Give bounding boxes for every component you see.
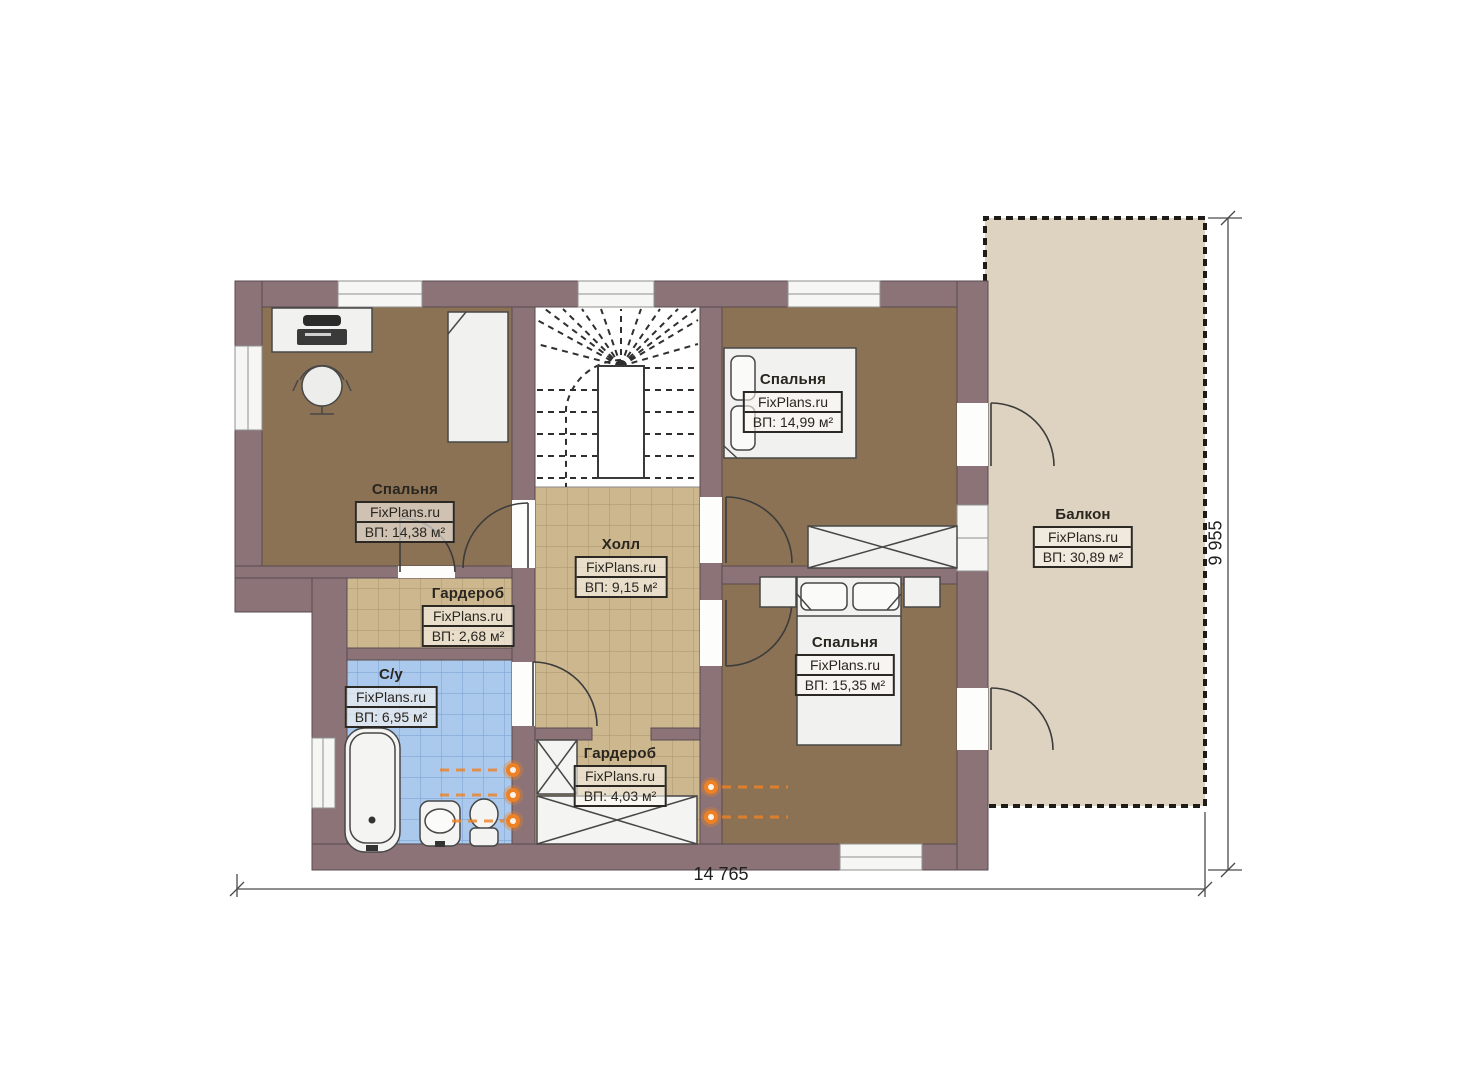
wall-left-lower bbox=[312, 578, 347, 870]
room-label-bedroom-bottom-right: Спальня FixPlans.ru ВП: 15,35 м² bbox=[795, 634, 895, 696]
room-area: ВП: 9,15 м² bbox=[577, 578, 666, 596]
room-name: Гардероб bbox=[574, 745, 667, 762]
room-area: ВП: 14,99 м² bbox=[745, 413, 841, 431]
room-area: ВП: 6,95 м² bbox=[347, 708, 436, 726]
nightstand-left bbox=[760, 577, 796, 607]
brand-watermark: FixPlans.ru bbox=[745, 393, 841, 413]
brand-watermark: FixPlans.ru bbox=[576, 767, 665, 787]
room-name: Гардероб bbox=[422, 585, 515, 602]
brand-watermark: FixPlans.ru bbox=[424, 607, 513, 627]
wardrobe-cabinet bbox=[808, 526, 957, 568]
room-area: ВП: 30,89 м² bbox=[1035, 548, 1131, 566]
wall-inner-right bbox=[700, 307, 722, 844]
room-label-balcony: Балкон FixPlans.ru ВП: 30,89 м² bbox=[1033, 506, 1133, 568]
room-name: Балкон bbox=[1033, 506, 1133, 523]
dimension-width-label: 14 765 bbox=[693, 864, 748, 885]
room-label-wardrobe-large: Гардероб FixPlans.ru ВП: 4,03 м² bbox=[574, 745, 667, 807]
brand-watermark: FixPlans.ru bbox=[1035, 528, 1131, 548]
wall-hall-wardrobe-a bbox=[535, 728, 592, 740]
wall-left-upper bbox=[235, 281, 262, 612]
bathtub bbox=[345, 728, 400, 852]
room-name: Спальня bbox=[743, 371, 843, 388]
room-name: Спальня bbox=[795, 634, 895, 651]
wall-hall-wardrobe-b bbox=[651, 728, 700, 740]
room-name: Холл bbox=[575, 536, 668, 553]
room-area: ВП: 2,68 м² bbox=[424, 627, 513, 645]
nightstand-right bbox=[904, 577, 940, 607]
room-area: ВП: 4,03 м² bbox=[576, 787, 665, 805]
room-label-bathroom: С/у FixPlans.ru ВП: 6,95 м² bbox=[345, 666, 438, 728]
wall-bedroom1-bottom bbox=[235, 566, 512, 578]
closet-narrow bbox=[537, 740, 577, 794]
stair-void bbox=[598, 366, 644, 478]
room-area: ВП: 14,38 м² bbox=[357, 523, 453, 541]
room-label-bedroom-top-right: Спальня FixPlans.ru ВП: 14,99 м² bbox=[743, 371, 843, 433]
room-label-bedroom-top-left: Спальня FixPlans.ru ВП: 14,38 м² bbox=[355, 481, 455, 543]
wall-bath-divider bbox=[347, 648, 512, 660]
floor-hall bbox=[535, 487, 700, 740]
room-name: Спальня bbox=[355, 481, 455, 498]
room-area: ВП: 15,35 м² bbox=[797, 676, 893, 694]
brand-watermark: FixPlans.ru bbox=[347, 688, 436, 708]
room-label-hall: Холл FixPlans.ru ВП: 9,15 м² bbox=[575, 536, 668, 598]
brand-watermark: FixPlans.ru bbox=[577, 558, 666, 578]
computer-icon bbox=[303, 315, 341, 326]
sink bbox=[420, 801, 460, 847]
computer-base-icon bbox=[297, 329, 347, 345]
floor-plan-page: Спальня FixPlans.ru ВП: 14,38 м² Спальня… bbox=[0, 0, 1473, 1080]
brand-watermark: FixPlans.ru bbox=[797, 656, 893, 676]
room-label-wardrobe-small: Гардероб FixPlans.ru ВП: 2,68 м² bbox=[422, 585, 515, 647]
brand-watermark: FixPlans.ru bbox=[357, 503, 453, 523]
wall-right bbox=[957, 281, 988, 870]
dimension-height-label: 9 955 bbox=[1206, 520, 1227, 565]
room-name: С/у bbox=[345, 666, 438, 683]
single-bed bbox=[448, 312, 508, 442]
floor-plan-drawing bbox=[0, 0, 1473, 1080]
